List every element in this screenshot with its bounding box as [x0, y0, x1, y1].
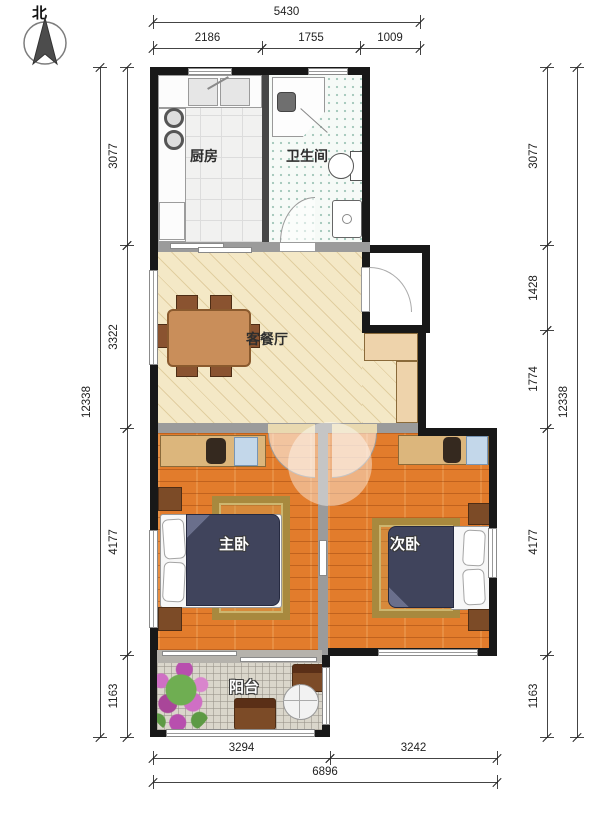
dim-label: 2186	[168, 32, 248, 44]
dim-label: 1774	[528, 339, 544, 419]
dim-label: 5430	[247, 6, 327, 18]
dim-line	[127, 655, 128, 737]
dim-label: 1755	[271, 32, 351, 44]
dim-line	[153, 48, 262, 49]
dim-line	[127, 245, 128, 428]
dim-label: 12338	[81, 362, 97, 442]
dim-line	[360, 48, 420, 49]
dim-line	[577, 67, 578, 737]
dim-label: 1009	[350, 32, 430, 44]
dim-line	[153, 758, 330, 759]
dim-line	[262, 48, 360, 49]
dim-label: 3294	[202, 742, 282, 754]
dimension-layer: 5430218617551009123383077332241771163123…	[0, 0, 600, 825]
dim-line	[127, 428, 128, 655]
dim-line	[330, 758, 497, 759]
dim-line	[127, 67, 128, 245]
dim-label: 3077	[528, 116, 544, 196]
dim-label: 12338	[558, 362, 574, 442]
dim-label: 3077	[108, 116, 124, 196]
dim-label: 1163	[108, 656, 124, 736]
dim-line	[100, 67, 101, 737]
dim-label: 4177	[528, 502, 544, 582]
dim-line	[547, 245, 548, 330]
dim-label: 6896	[285, 766, 365, 778]
dim-line	[547, 67, 548, 245]
dim-label: 4177	[108, 502, 124, 582]
dim-line	[547, 655, 548, 737]
dim-line	[153, 782, 497, 783]
floorplan-canvas: 北	[0, 0, 600, 825]
dim-line	[547, 330, 548, 428]
dim-label: 1163	[528, 656, 544, 736]
dim-line	[547, 428, 548, 655]
dim-line	[153, 22, 420, 23]
dim-label: 3322	[108, 297, 124, 377]
dim-label: 1428	[528, 248, 544, 328]
dim-label: 3242	[374, 742, 454, 754]
